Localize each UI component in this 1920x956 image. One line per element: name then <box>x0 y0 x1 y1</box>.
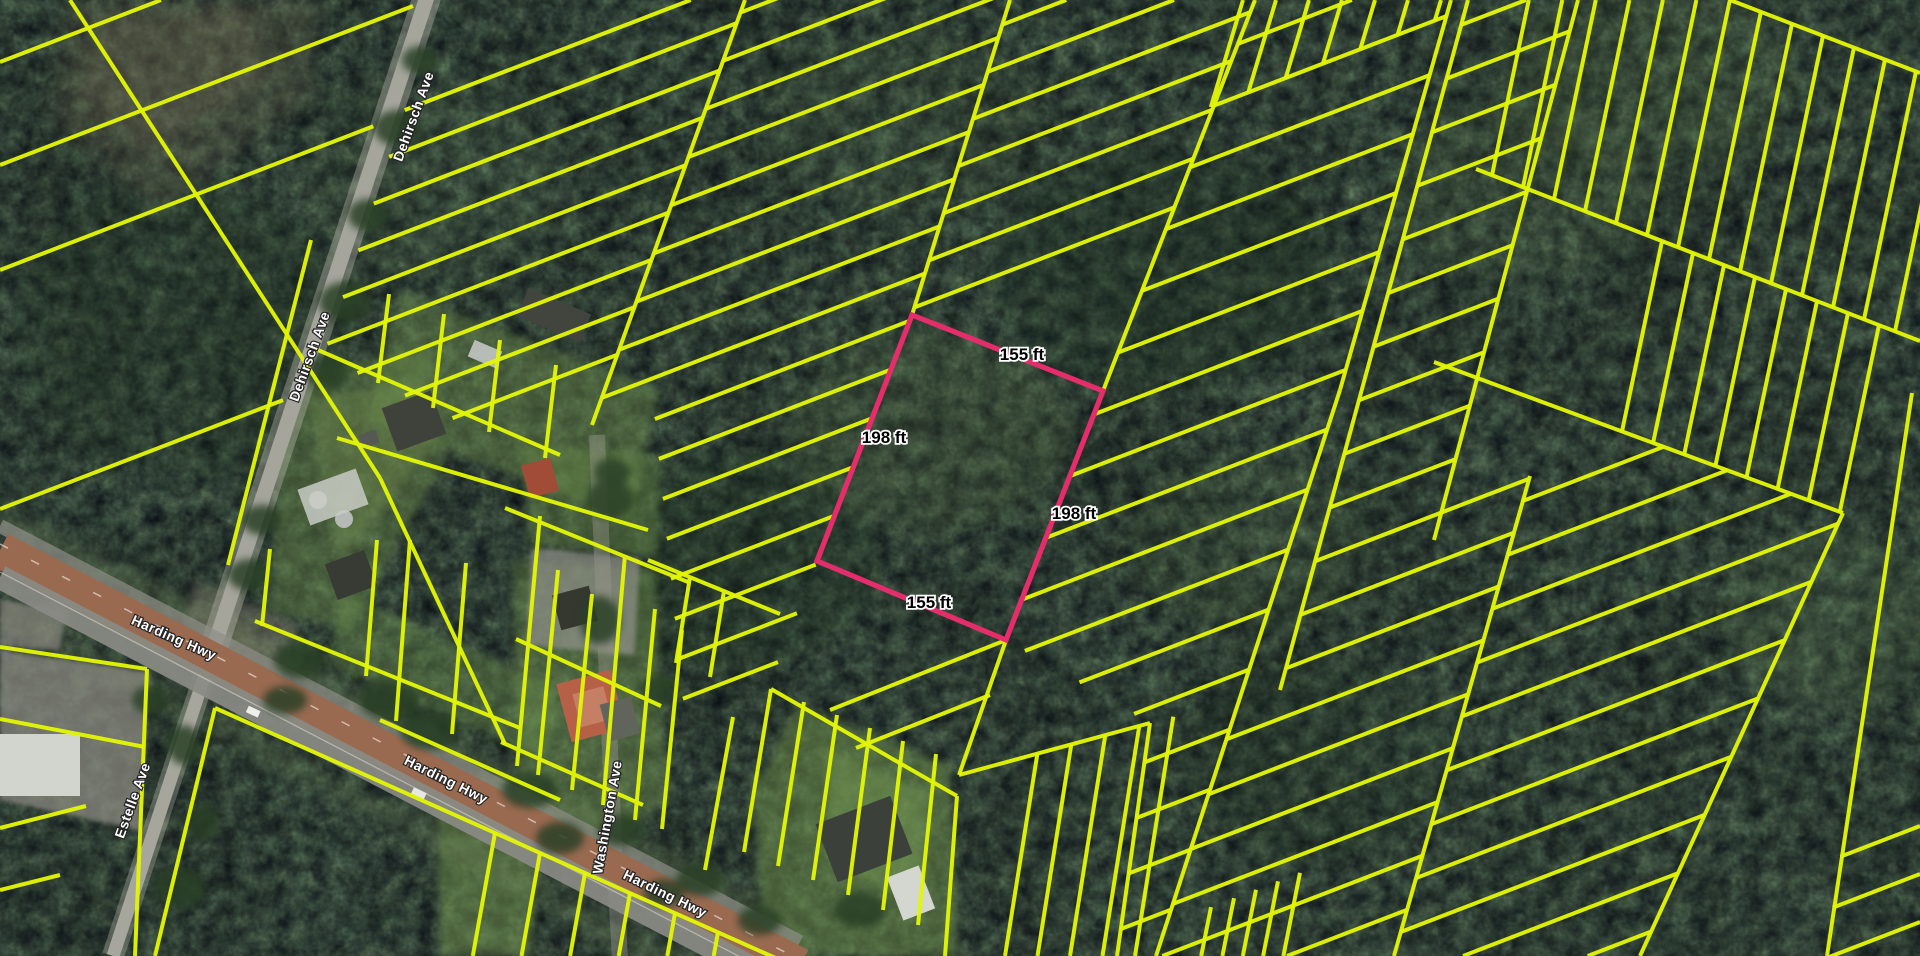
svg-text:198 ft: 198 ft <box>1052 504 1097 523</box>
svg-text:155 ft: 155 ft <box>1000 345 1045 364</box>
svg-text:155 ft: 155 ft <box>907 593 952 612</box>
svg-text:198 ft: 198 ft <box>862 428 907 447</box>
